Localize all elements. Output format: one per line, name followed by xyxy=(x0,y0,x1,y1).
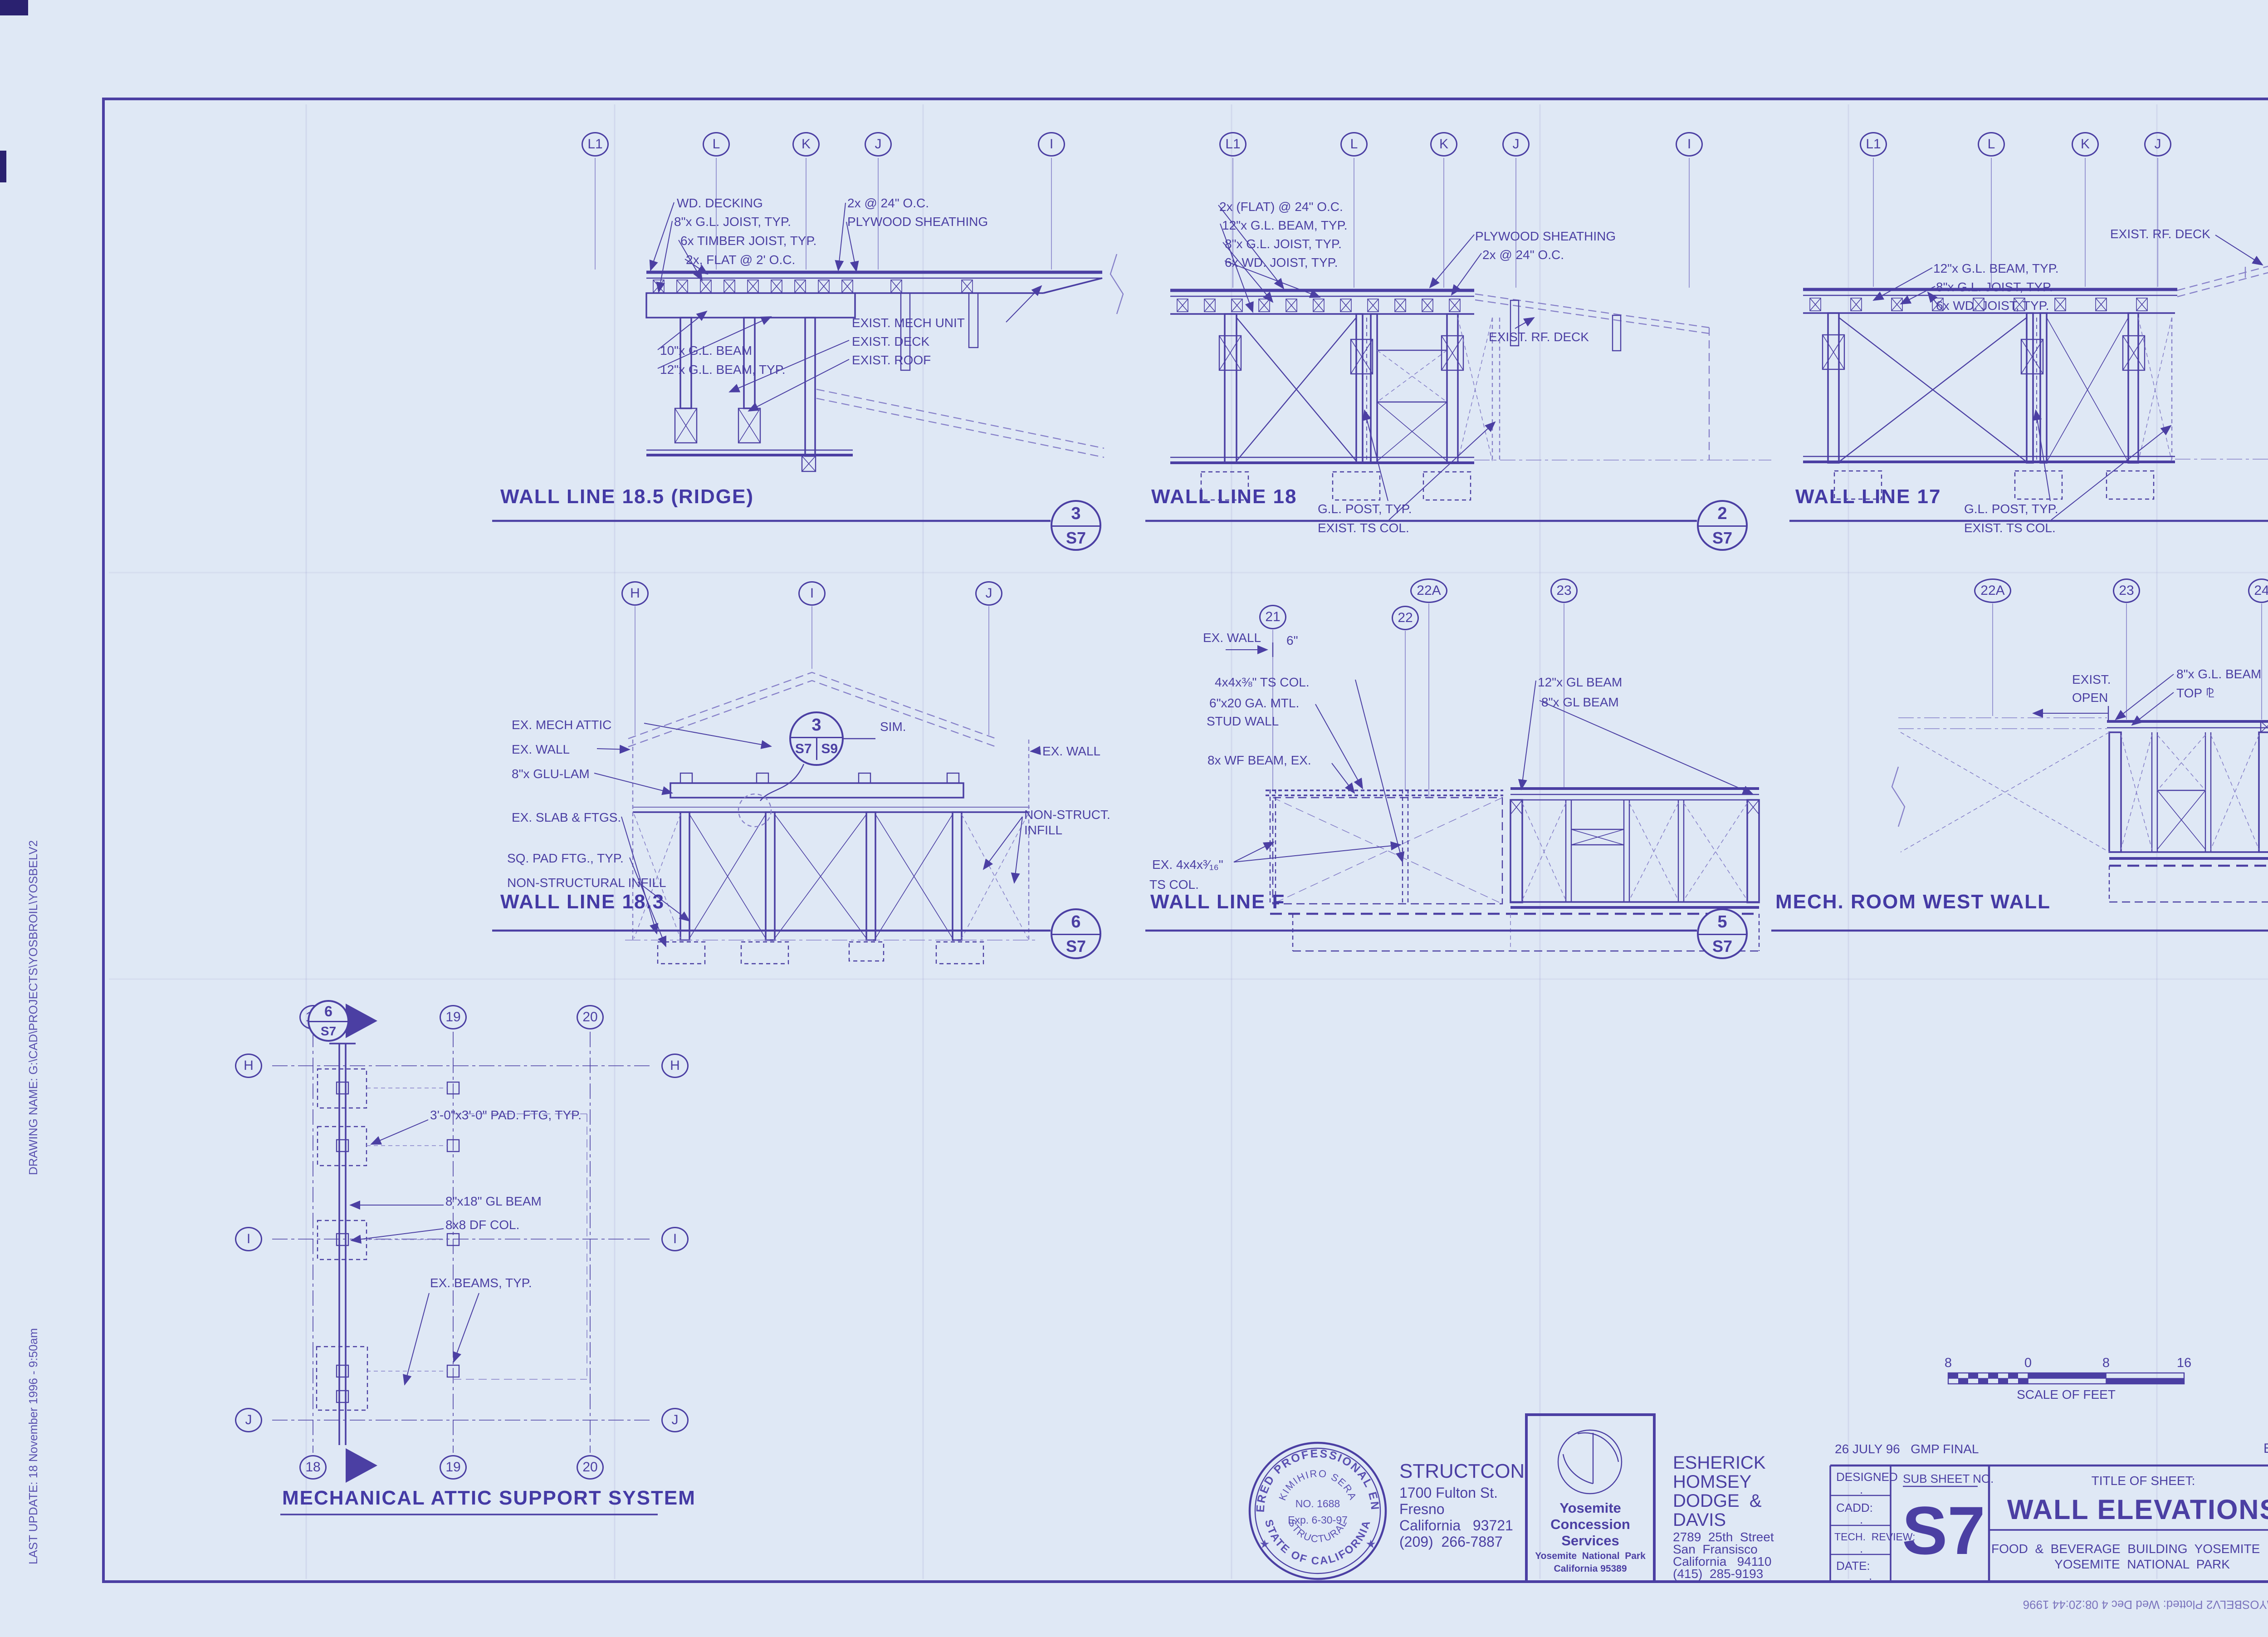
annotation-label: 12"x GL BEAM xyxy=(1538,675,1622,690)
grid-bubble: 20 xyxy=(577,1455,604,1480)
annotation-label: OPEN xyxy=(2072,691,2108,705)
grid-bubble: 22A xyxy=(1410,578,1447,603)
annotation-label: 8x8 DF COL. xyxy=(445,1218,519,1232)
grid-label: J xyxy=(986,587,992,600)
annotation-label: NON-STRUCT. xyxy=(1024,808,1110,822)
annotation-label: EX. MECH ATTIC xyxy=(512,718,611,732)
edge-last-update: LAST UPDATE: 18 November 1996 - 9:50am xyxy=(27,1328,39,1564)
annotation-label: G.L. POST, TYP. xyxy=(1318,502,1412,516)
ycs-line5: California 95389 xyxy=(1529,1563,1652,1574)
annotation-label: 6x WD. JOIST, TYP. xyxy=(1225,255,1338,270)
grid-label: L xyxy=(713,137,720,151)
annotation-label: EX. WALL xyxy=(1203,631,1261,645)
grid-label: H xyxy=(630,587,640,600)
grid-bubble: L1 xyxy=(1219,132,1246,157)
plot-stamp: File: G:\CAD\PROJECTS\YOSBROIL\YOSBELV2 … xyxy=(1856,1599,2268,1611)
annotation-label: 12"x G.L. BEAM, TYP. xyxy=(1933,261,2059,276)
grid-label: 22A xyxy=(1980,584,2004,598)
grid-label: L1 xyxy=(1225,137,1240,151)
grid-label: 18 xyxy=(305,1461,320,1474)
annotation-label: 10"x G.L. BEAM xyxy=(660,343,752,358)
detail-sheet: S7 xyxy=(309,1021,347,1040)
grid-bubble: J xyxy=(2144,132,2171,157)
annotation-label: G.L. POST, TYP. xyxy=(1964,502,2058,516)
ycs-line2: Concession xyxy=(1529,1516,1652,1533)
grid-bubble: 22 xyxy=(1392,606,1419,630)
annotation-label: 2x (FLAT) @ 24" O.C. xyxy=(1219,200,1343,214)
grid-bubble: I xyxy=(235,1227,262,1251)
grid-bubble: L xyxy=(1340,132,1368,157)
detail-number: 3 xyxy=(811,713,821,737)
scale-label: 8 xyxy=(2096,1356,2116,1371)
grid-label: 21 xyxy=(1265,610,1280,624)
svg-text:KIMIHIRO SERA: KIMIHIRO SERA xyxy=(1276,1468,1359,1502)
annotation-label: EXIST. DECK xyxy=(852,334,929,349)
sub-sheet-number: S7 xyxy=(1901,1496,1987,1564)
annotation-label: 12"x G.L. BEAM, TYP. xyxy=(660,363,786,377)
detail-number: 5 xyxy=(1717,910,1727,934)
annotation-label: 8"x G.L. BEAM xyxy=(2176,667,2261,681)
grid-label: I xyxy=(247,1232,250,1246)
title-of-sheet-label: TITLE OF SHEET: xyxy=(1994,1474,2268,1488)
grid-bubble: H xyxy=(621,581,649,606)
annotation-label: EX. WALL xyxy=(1042,744,1100,759)
stamp-number: NO. 1688 xyxy=(1295,1498,1340,1510)
grid-label: 23 xyxy=(2119,584,2134,598)
annotation-label: 3'-0"x3'-0" PAD. FTG, TYP. xyxy=(430,1108,582,1122)
grid-label: I xyxy=(1687,137,1691,151)
ehdd-name4: DAVIS xyxy=(1673,1510,1726,1530)
annotation-label: 6"x20 GA. MTL. xyxy=(1209,696,1299,711)
grid-label: 23 xyxy=(1556,584,1571,598)
annotation-label: 2x @ 24" O.C. xyxy=(1482,248,1564,262)
grid-bubble: L xyxy=(1978,132,2005,157)
detail-bubble: 2 S7 xyxy=(1697,500,1748,551)
ehdd-phone: (415) 285-9193 xyxy=(1673,1567,1763,1581)
sub-sheet-label: SUB SHEET NO. xyxy=(1903,1472,1994,1486)
detail-number: 6 xyxy=(1071,910,1080,934)
gmp-date-note: 26 JULY 96 GMP FINAL xyxy=(1835,1442,1979,1456)
annotation-label: WD. DECKING xyxy=(677,196,763,211)
grid-bubble: I xyxy=(1676,132,1703,157)
grid-bubble: L1 xyxy=(1860,132,1887,157)
scale-label: 0 xyxy=(2018,1356,2038,1371)
ycs-line4: Yosemite National Park xyxy=(1529,1551,1652,1562)
detail-sheet: S9 xyxy=(816,738,842,760)
annotation-label: INFILL xyxy=(1024,823,1062,838)
grid-bubble: 20 xyxy=(577,1005,604,1029)
designed-label: DESIGNED xyxy=(1836,1470,1898,1484)
grid-bubble: J xyxy=(661,1408,689,1432)
annotation-label: 2x, FLAT @ 2' O.C. xyxy=(686,253,795,267)
ycs-line1: Yosemite xyxy=(1529,1500,1652,1516)
grid-bubble: 23 xyxy=(2113,578,2140,603)
detail-bubble: 6 S7 xyxy=(1051,908,1101,959)
grid-bubble: K xyxy=(1430,132,1457,157)
detail-sheet: S7 xyxy=(1699,934,1746,958)
grid-bubble: 22A xyxy=(1974,578,2011,603)
annotation-label: STUD WALL xyxy=(1207,714,1279,729)
ehdd-name3: DODGE & xyxy=(1673,1491,1762,1511)
structcon-address3: California 93721 xyxy=(1399,1517,1513,1534)
detail-sheet: S7 xyxy=(1052,934,1100,958)
annotation-label: 8"x G.L. JOIST, TYP. xyxy=(1936,280,2053,294)
annotation-label: TOP ⅊ xyxy=(2176,686,2214,701)
detail-bubble: 3 S7 xyxy=(1051,500,1101,551)
plan-mechanical-attic-support xyxy=(272,1004,658,1514)
panel-title: WALL LINE 18.5 (RIDGE) xyxy=(500,487,754,507)
panel-title: MECHANICAL ATTIC SUPPORT SYSTEM xyxy=(282,1488,696,1508)
date-value: . xyxy=(1869,1569,1872,1583)
grid-label: 20 xyxy=(582,1010,597,1024)
detail-sheet: S7 xyxy=(791,738,816,760)
annotation-label: 8x WF BEAM, EX. xyxy=(1207,753,1311,768)
project-name-line1: FOOD & BEVERAGE BUILDING YOSEMITE LODGE xyxy=(1991,1542,2268,1556)
grid-bubble: J xyxy=(1502,132,1530,157)
annotation-label: 8"x GL BEAM xyxy=(1541,695,1619,710)
elevation-mech-room-west-wall xyxy=(1771,603,2268,931)
ycs-line3: Services xyxy=(1529,1533,1652,1549)
annotation-label: 6x TIMBER JOIST, TYP. xyxy=(680,234,816,248)
grid-label: I xyxy=(810,587,814,600)
panel-title: MECH. ROOM WEST WALL xyxy=(1775,892,2051,912)
grid-bubble: 19 xyxy=(440,1005,467,1029)
panel-title: WALL LINE 18.3 xyxy=(500,892,665,912)
scale-label: 8 xyxy=(1938,1356,1959,1371)
ehdd-name1: ESHERICK xyxy=(1673,1453,1766,1473)
sim-label: SIM. xyxy=(880,720,906,734)
sheet-title: WALL ELEVATIONS xyxy=(1992,1494,2268,1525)
grid-bubble: K xyxy=(792,132,820,157)
annotation-label: EXIST. TS COL. xyxy=(1964,521,2056,535)
stamp-name: KIMIHIRO SERA xyxy=(1276,1468,1359,1502)
detail-sheet: S7 xyxy=(1052,525,1100,549)
grid-bubble: H xyxy=(661,1054,689,1078)
grid-bubble: 21 xyxy=(1259,605,1286,629)
grid-label: L xyxy=(1988,137,1995,151)
annotation-label: PLYWOOD SHEATHING xyxy=(1475,229,1616,244)
detail-number: 6 xyxy=(324,1002,332,1021)
grid-label: H xyxy=(670,1059,680,1073)
annotation-label: EXIST. ROOF xyxy=(852,353,931,368)
grid-bubble: K xyxy=(2072,132,2099,157)
annotation-label: EX. BEAMS, TYP. xyxy=(430,1276,532,1290)
scale-bar xyxy=(1948,1373,2184,1384)
grid-bubble: I xyxy=(1038,132,1065,157)
grid-bubble: J xyxy=(865,132,892,157)
annotation-label: EXIST. RF. DECK xyxy=(2110,227,2210,241)
grid-label: L1 xyxy=(1866,137,1881,151)
grid-label: H xyxy=(244,1059,254,1073)
ehdd-project-note: EHDD PROJECT #9558 xyxy=(2263,1441,2268,1456)
grid-label: L xyxy=(1350,137,1358,151)
tech-review-value: . xyxy=(1860,1542,1863,1556)
annotation-label: 6x WD. JOIST, TYP. xyxy=(1936,299,2049,313)
grid-label: J xyxy=(2155,137,2161,151)
sim-detail-bubble: 3 S7 S9 xyxy=(789,711,844,766)
grid-bubble: 23 xyxy=(1550,578,1578,603)
grid-bubble: J xyxy=(975,581,1002,606)
annotation-label: EX. WALL xyxy=(512,742,570,757)
annotation-label: 4x4x⅜" TS COL. xyxy=(1215,675,1310,690)
elevation-wall-line-18-5 xyxy=(492,158,1123,521)
structcon-phone: (209) 266-7887 xyxy=(1399,1534,1503,1550)
grid-label: I xyxy=(1050,137,1053,151)
annotation-label: NON-STRUCTURAL INFILL xyxy=(507,876,666,890)
cadd-value: . xyxy=(1860,1513,1863,1527)
grid-label: J xyxy=(245,1413,252,1427)
grid-bubble: I xyxy=(798,581,826,606)
annotation-label: 8"x GLU-LAM xyxy=(512,767,590,781)
grid-label: 22A xyxy=(1417,584,1441,598)
section-marker: 6 S7 xyxy=(308,1000,349,1042)
scan-edge-mark xyxy=(0,151,6,182)
grid-label: 24 xyxy=(2254,584,2268,598)
designed-value: . xyxy=(1860,1483,1863,1497)
grid-label: 20 xyxy=(582,1461,597,1474)
annotation-label: PLYWOOD SHEATHING xyxy=(847,215,988,229)
panel-title: WALL LINE 18 xyxy=(1151,487,1297,507)
panel-title: WALL LINE F xyxy=(1150,892,1285,912)
annotation-label: 6" xyxy=(1286,633,1298,648)
grid-label: J xyxy=(875,137,882,151)
annotation-label: EXIST. RF. DECK xyxy=(1489,330,1589,344)
grid-bubble: J xyxy=(235,1408,262,1432)
grid-bubble: 19 xyxy=(440,1455,467,1480)
cadd-label: CADD: xyxy=(1836,1501,1873,1515)
edge-drawing-name: DRAWING NAME: G:\CAD\PROJECTS\YOSBROIL\Y… xyxy=(27,840,39,1175)
annotation-label: 8"x G.L. JOIST, TYP. xyxy=(1225,237,1342,251)
date-label: DATE: xyxy=(1836,1559,1870,1573)
stamp-star-left: ★ xyxy=(1259,1538,1270,1551)
grid-label: L1 xyxy=(587,137,602,151)
blueprint-sheet: REGISTERED PROFESSIONAL ENGINEER STATE O… xyxy=(0,0,2268,1637)
structcon-name: STRUCTCON xyxy=(1399,1460,1525,1483)
grid-bubble: L xyxy=(703,132,730,157)
annotation-label: 8"x18" GL BEAM xyxy=(445,1194,542,1209)
annotation-label: EXIST. MECH UNIT xyxy=(852,316,965,330)
scale-label: 16 xyxy=(2170,1356,2198,1371)
elevation-wall-line-17 xyxy=(1789,158,2268,521)
structcon-address1: 1700 Fulton St. xyxy=(1399,1485,1498,1501)
annotation-label: TS COL. xyxy=(1149,877,1199,892)
annotation-label: 8"x G.L. JOIST, TYP. xyxy=(674,215,791,229)
annotation-label: EX. 4x4x³⁄₁₆" xyxy=(1152,858,1223,872)
grid-label: J xyxy=(1513,137,1520,151)
grid-bubble: H xyxy=(235,1054,262,1078)
grid-label: 19 xyxy=(445,1010,460,1024)
grid-label: I xyxy=(673,1232,677,1246)
detail-sheet: S7 xyxy=(1699,525,1746,549)
scale-caption: SCALE OF FEET xyxy=(1994,1387,2139,1402)
annotation-label: SQ. PAD FTG., TYP. xyxy=(507,851,624,866)
grid-label: 19 xyxy=(445,1461,460,1474)
detail-number: 2 xyxy=(1717,502,1727,525)
annotation-label: 2x @ 24" O.C. xyxy=(847,196,929,211)
stamp-star-right: ★ xyxy=(1365,1538,1376,1551)
grid-bubble: L1 xyxy=(582,132,609,157)
sheet-linework: REGISTERED PROFESSIONAL ENGINEER STATE O… xyxy=(0,0,2268,1637)
annotation-label: EXIST. xyxy=(2072,672,2111,687)
detail-number: 3 xyxy=(1071,502,1080,525)
detail-bubble: 5 S7 xyxy=(1697,908,1748,959)
grid-label: K xyxy=(2081,137,2090,151)
scan-corner-mark xyxy=(0,0,28,15)
grid-bubble: 18 xyxy=(299,1455,327,1480)
annotation-label: EXIST. TS COL. xyxy=(1318,521,1409,535)
ehdd-name2: HOMSEY xyxy=(1673,1472,1751,1492)
stamp-expiry: Exp. 6-30-97 xyxy=(1288,1514,1348,1526)
project-name-line2: YOSEMITE NATIONAL PARK xyxy=(1991,1557,2268,1572)
annotation-label: 12"x G.L. BEAM, TYP. xyxy=(1222,218,1348,233)
structcon-address2: Fresno xyxy=(1399,1501,1445,1518)
grid-label: J xyxy=(672,1413,679,1427)
grid-label: 22 xyxy=(1398,611,1413,625)
grid-bubble: I xyxy=(661,1227,689,1251)
grid-label: K xyxy=(1439,137,1448,151)
annotation-label: EX. SLAB & FTGS. xyxy=(512,810,621,825)
panel-title: WALL LINE 17 xyxy=(1795,487,1941,507)
grid-label: K xyxy=(802,137,811,151)
